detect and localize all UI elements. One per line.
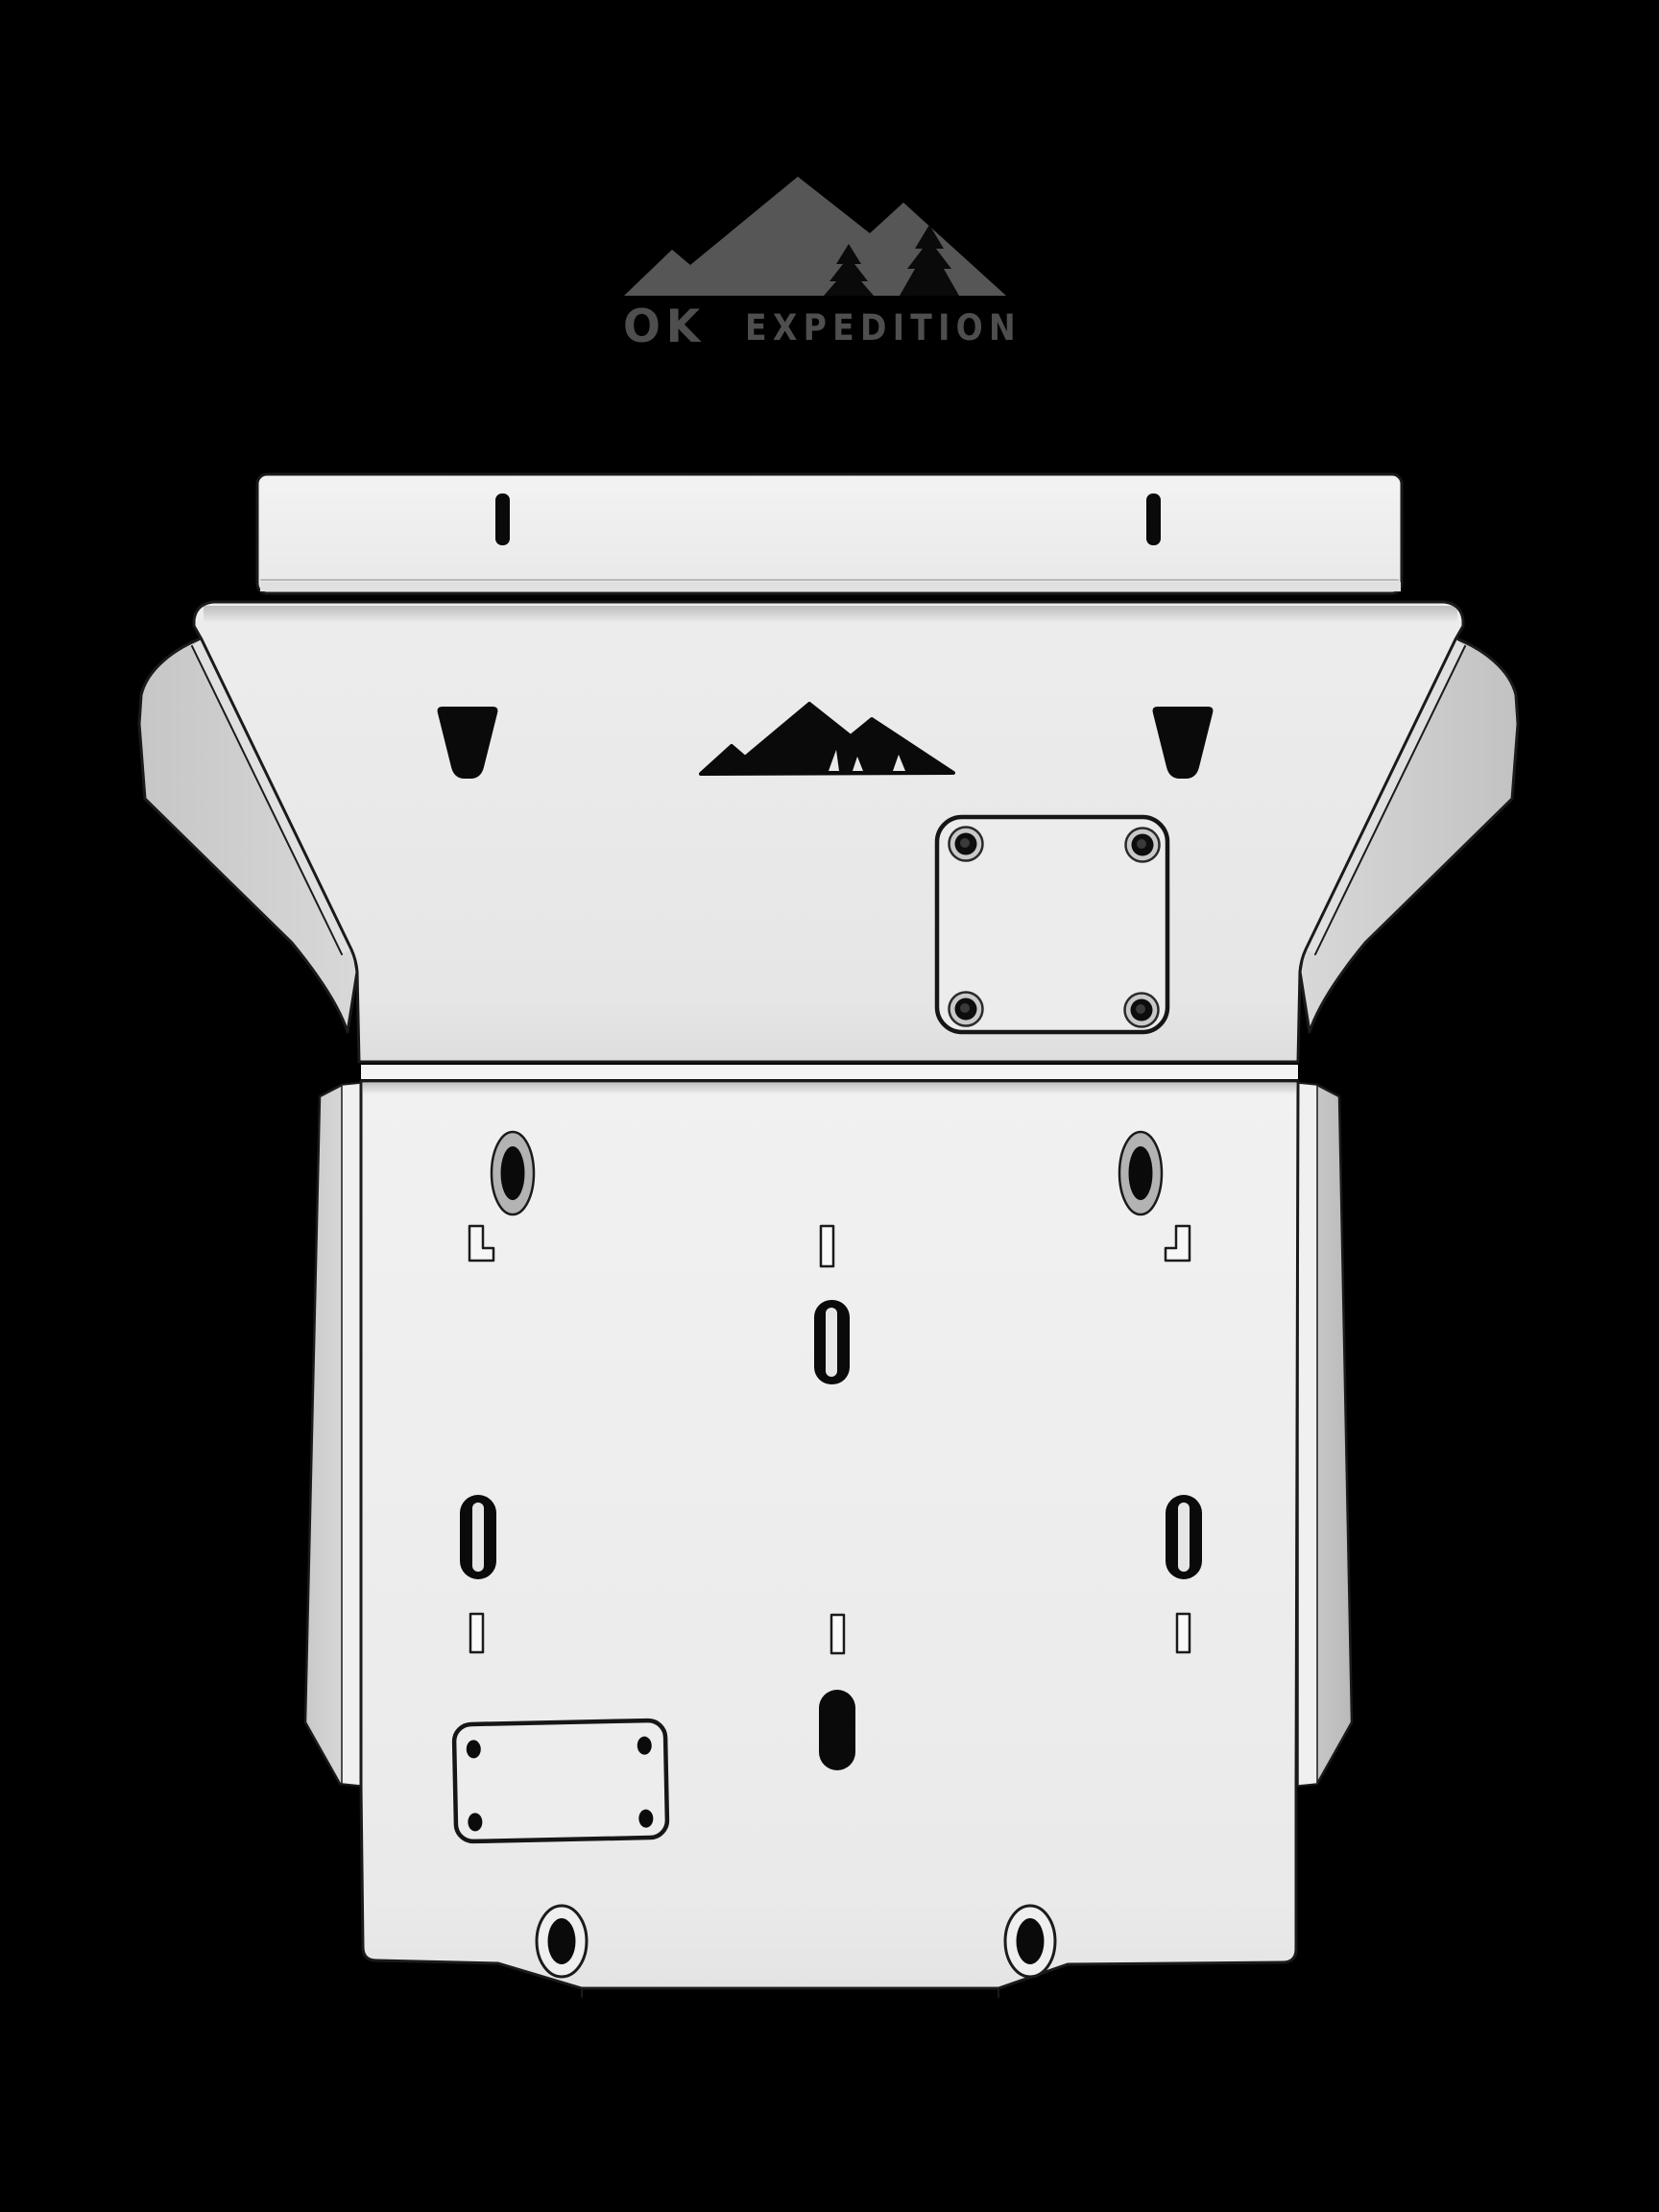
lower-plate-face [361, 1081, 1298, 1988]
fold-band-shadow [363, 1083, 1296, 1094]
fold-band [361, 1065, 1298, 1079]
top-mount-plate [257, 474, 1402, 593]
rect-access-panel [454, 1720, 668, 1842]
slit-slot-center-top [821, 1226, 833, 1266]
brand-logo: OK EXPEDITION [623, 177, 1022, 353]
square-access-panel [937, 817, 1167, 1032]
brand-text-secondary: EXPEDITION [745, 307, 1022, 349]
socket-bolt [1126, 829, 1160, 862]
socket-bolt [1125, 994, 1159, 1027]
side-skirt-right [1298, 1083, 1352, 1786]
skid-plate-render: OK EXPEDITION [0, 0, 1659, 2212]
slit-slot-center [831, 1615, 844, 1653]
counterbore-slot-bottom-right [1005, 1906, 1055, 1977]
product-render-canvas: OK EXPEDITION [0, 0, 1659, 2212]
oval-slot-center-lower [819, 1690, 855, 1770]
oval-slot-mid-right [1166, 1495, 1202, 1579]
top-mount-slot [495, 493, 510, 545]
slit-slot-right [1177, 1614, 1190, 1652]
counterbore-slot-left [492, 1132, 534, 1214]
socket-bolt [950, 828, 983, 861]
counterbore-slot-right [1119, 1132, 1162, 1214]
oval-slot-mid-left [460, 1495, 496, 1579]
socket-bolt [950, 993, 983, 1026]
upper-plate-face [194, 602, 1463, 1062]
brand-text-primary: OK [623, 301, 706, 353]
skid-plate [139, 474, 1518, 1997]
top-mount-slot [1146, 493, 1161, 545]
slit-slot-left [470, 1614, 483, 1652]
oval-slot-center-upper [814, 1300, 850, 1384]
upper-face-top-shadow [204, 606, 1457, 623]
side-skirt-left [305, 1083, 361, 1786]
counterbore-slot-bottom-left [537, 1906, 587, 1977]
